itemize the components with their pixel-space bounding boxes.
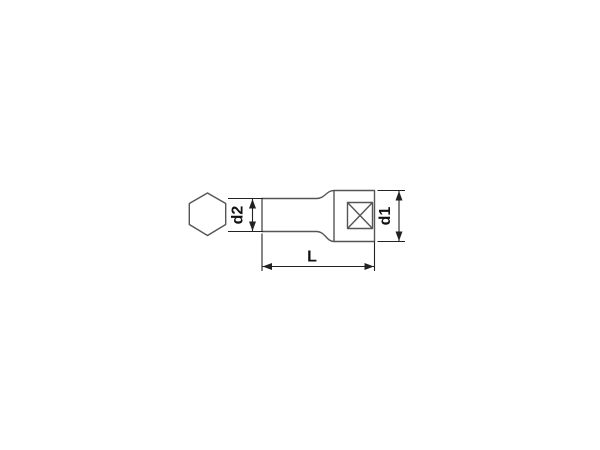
socket-body-outline: [262, 191, 375, 242]
d1-label: d1: [377, 207, 394, 226]
length-label: L: [307, 249, 317, 266]
d2-label: d2: [230, 206, 247, 225]
drawing-canvas: d2 d1 L: [0, 0, 600, 450]
square-drive-recess: [348, 203, 373, 229]
hex-socket-end-view: [189, 193, 225, 236]
dimension-d1: d1: [377, 191, 405, 242]
dimension-d2: d2: [228, 199, 263, 232]
dimension-length: L: [262, 234, 375, 272]
socket-technical-drawing: d2 d1 L: [0, 0, 600, 450]
socket-side-view: [262, 191, 375, 242]
